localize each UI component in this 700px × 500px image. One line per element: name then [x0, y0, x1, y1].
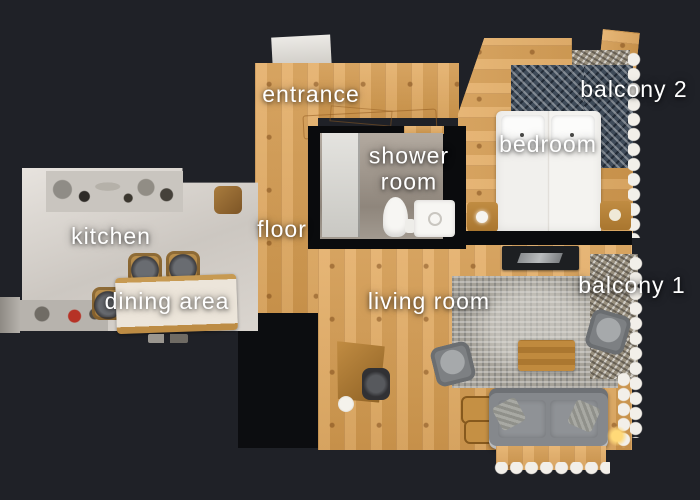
label-kitchen: kitchen	[71, 224, 151, 250]
tv-screen	[517, 253, 563, 263]
desk-chair	[362, 368, 390, 400]
walk-in-shower	[322, 133, 360, 237]
nightstand-right	[600, 201, 631, 230]
lamp-right	[609, 209, 621, 221]
kitchen-stool	[214, 186, 242, 214]
desk-lamp	[338, 396, 354, 412]
label-dining-area: dining area	[105, 289, 230, 315]
sink-basin	[428, 212, 442, 226]
nightstand-left	[467, 202, 498, 232]
floor-plan-canvas: entrance shower room bedroom balcony 2 k…	[0, 0, 700, 500]
label-floor: floor	[257, 217, 307, 243]
label-shower-room: shower room	[357, 143, 461, 195]
label-balcony-2: balcony 2	[580, 77, 687, 103]
vanity-sink	[414, 200, 455, 237]
dining-floor-items	[148, 334, 188, 343]
label-bedroom: bedroom	[499, 132, 597, 158]
lamp-left	[476, 211, 488, 223]
bottom-snow-edge	[494, 462, 610, 480]
label-balcony-1: balcony 1	[578, 273, 685, 299]
tv-console	[502, 246, 579, 270]
sofa	[489, 388, 608, 449]
kitchen-counter	[46, 171, 183, 212]
bedroom-living-wall	[458, 231, 632, 245]
floor-lamp-glow	[606, 426, 628, 446]
coffee-table	[518, 340, 575, 371]
bed	[496, 111, 601, 237]
kitchen-edge-cabinet	[0, 297, 20, 333]
label-entrance: entrance	[262, 82, 360, 108]
label-living-room: living room	[368, 289, 490, 315]
